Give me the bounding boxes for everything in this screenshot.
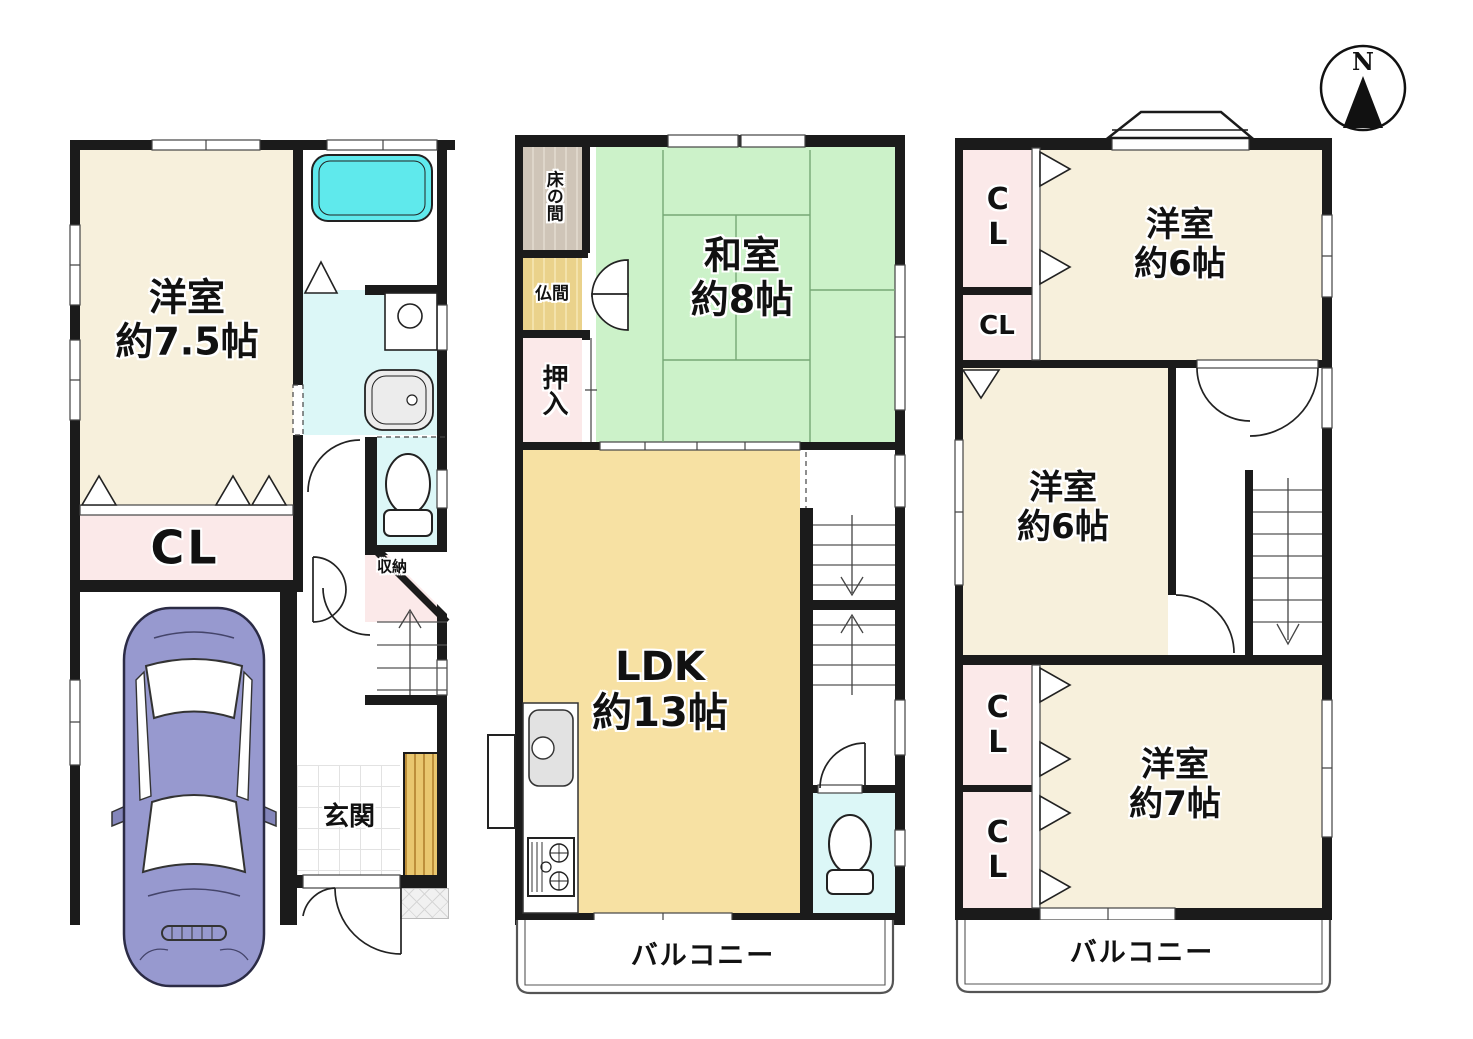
label-storage: 収納 bbox=[377, 558, 407, 575]
bathtub bbox=[312, 155, 432, 221]
label-balcony-2f: バルコニー bbox=[631, 940, 775, 971]
washroom-1f bbox=[303, 290, 437, 435]
label-japanese-room: 和室 約8帖 bbox=[691, 234, 793, 321]
label-butsuma: 仏間 bbox=[535, 285, 569, 305]
label-closet-3f-3: CL bbox=[980, 690, 1015, 760]
label-tokonoma: 床の間 bbox=[542, 171, 562, 222]
label-closet-1f: CL bbox=[150, 522, 219, 575]
label-western-room-6-top: 洋室 約6帖 bbox=[1134, 206, 1226, 284]
stairs-1f[interactable] bbox=[377, 610, 447, 695]
label-closet-3f-4: CL bbox=[980, 815, 1015, 885]
toilet-room-2f bbox=[813, 793, 895, 913]
floor-plan-canvas: 洋室 約7.5帖 CL 収納 玄関 床の間 仏間 押入 和室 約8帖 LDK 約… bbox=[0, 0, 1473, 1039]
label-western-room-7: 洋室 約7帖 bbox=[1129, 746, 1221, 824]
label-oshiire: 押入 bbox=[537, 364, 567, 416]
label-western-room-6-mid: 洋室 約6帖 bbox=[1017, 469, 1109, 547]
kitchen-bay bbox=[488, 735, 515, 828]
car bbox=[112, 608, 276, 986]
label-entrance: 玄関 bbox=[323, 803, 375, 833]
toilet-room-1f bbox=[377, 437, 437, 545]
stairs-3f[interactable] bbox=[1253, 478, 1322, 644]
bay-window bbox=[1108, 112, 1252, 138]
label-balcony-3f: バルコニー bbox=[1070, 937, 1214, 968]
label-western-room-7-5: 洋室 約7.5帖 bbox=[115, 276, 258, 363]
compass-north-label: N bbox=[1352, 48, 1374, 76]
entrance-porch bbox=[400, 888, 449, 919]
doors-3f[interactable] bbox=[1176, 368, 1318, 653]
entrance-step-deck bbox=[403, 752, 441, 879]
label-ldk: LDK 約13帖 bbox=[592, 644, 728, 736]
label-closet-3f-1: CL bbox=[980, 182, 1015, 252]
stairs-2f[interactable] bbox=[813, 515, 895, 695]
label-closet-3f-2: CL bbox=[979, 312, 1015, 342]
